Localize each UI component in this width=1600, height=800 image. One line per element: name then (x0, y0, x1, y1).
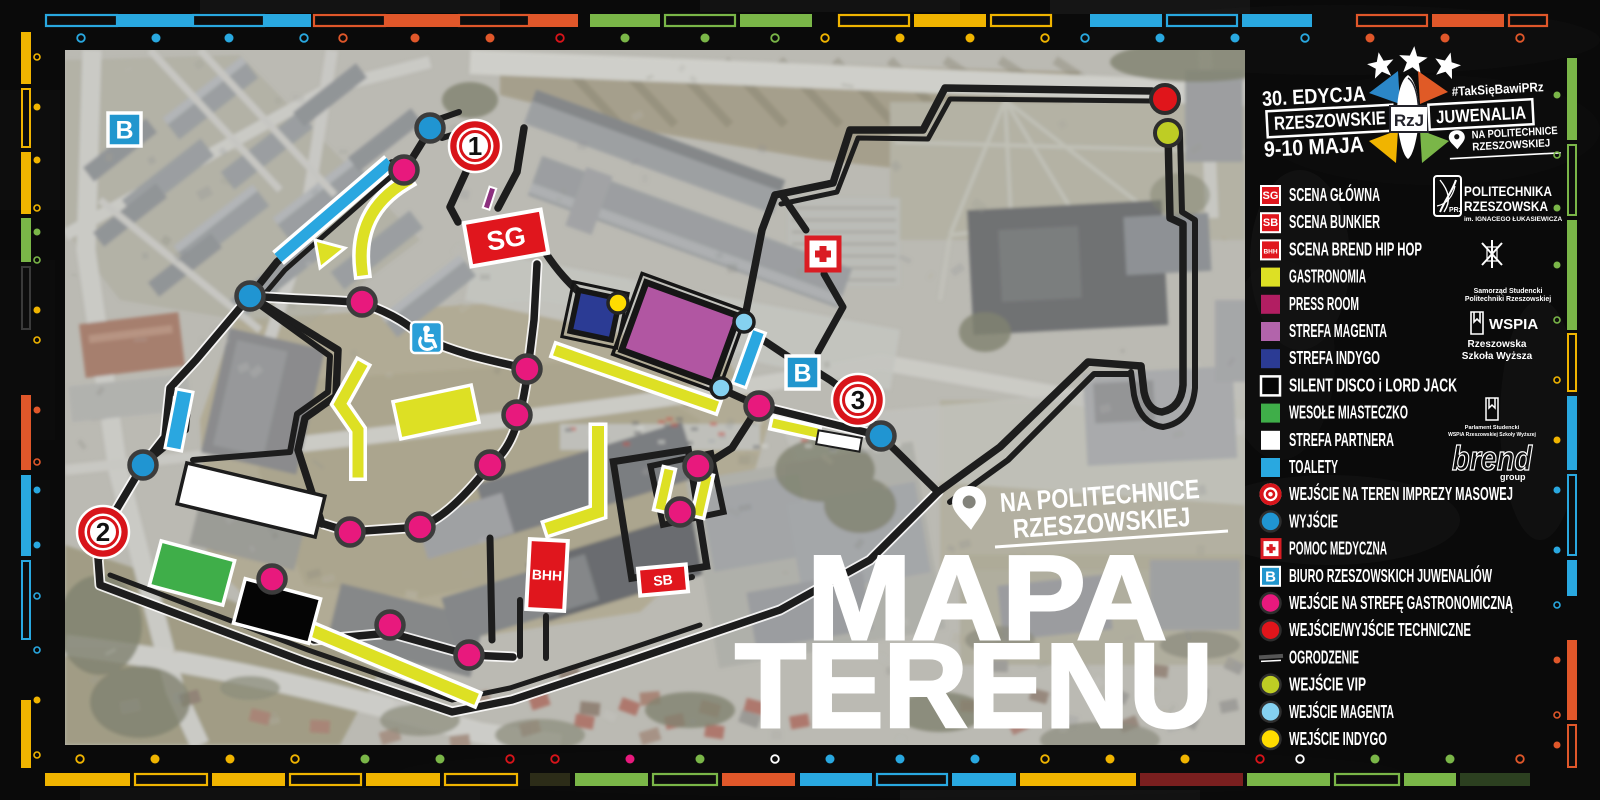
svg-text:WEJŚCIE VIP: WEJŚCIE VIP (1289, 674, 1366, 695)
svg-text:BIURO RZESZOWSKICH JUWENALIÓW: BIURO RZESZOWSKICH JUWENALIÓW (1289, 565, 1492, 586)
svg-text:GASTRONOMIA: GASTRONOMIA (1289, 267, 1366, 287)
svg-text:SILENT DISCO i LORD JACK: SILENT DISCO i LORD JACK (1289, 375, 1457, 395)
svg-text:TOALETY: TOALETY (1289, 457, 1338, 477)
svg-text:2: 2 (96, 517, 110, 547)
svg-text:WEJŚCIE NA TEREN IMPREZY MASOW: WEJŚCIE NA TEREN IMPREZY MASOWEJ (1289, 483, 1513, 504)
svg-text:BHH: BHH (1263, 248, 1277, 255)
svg-text:PRESS ROOM: PRESS ROOM (1289, 294, 1359, 314)
svg-text:WEJŚCIE/WYJŚCIE TECHNICZNE: WEJŚCIE/WYJŚCIE TECHNICZNE (1289, 619, 1471, 640)
svg-text:WSPiA Rzeszowskiej Szkoły Wyżs: WSPiA Rzeszowskiej Szkoły Wyższej (1448, 432, 1536, 438)
svg-text:RzJ: RzJ (1394, 111, 1424, 130)
svg-text:im. IGNACEGO ŁUKASIEWICZA: im. IGNACEGO ŁUKASIEWICZA (1464, 216, 1563, 223)
svg-text:PRz: PRz (1449, 207, 1463, 214)
svg-text:WESOŁE MIASTECZKO: WESOŁE MIASTECZKO (1289, 403, 1408, 423)
svg-text:Rzeszowska: Rzeszowska (1468, 339, 1527, 350)
svg-text:POLITECHNIKA: POLITECHNIKA (1464, 183, 1552, 199)
svg-text:SCENA BREND HIP HOP: SCENA BREND HIP HOP (1289, 239, 1422, 259)
svg-text:WEJŚCIE MAGENTA: WEJŚCIE MAGENTA (1289, 701, 1394, 722)
svg-text:TERENU: TERENU (735, 619, 1213, 753)
svg-text:SCENA BUNKIER: SCENA BUNKIER (1289, 212, 1380, 232)
svg-text:STREFA PARTNERA: STREFA PARTNERA (1289, 430, 1394, 450)
svg-text:STREFA MAGENTA: STREFA MAGENTA (1289, 321, 1387, 341)
svg-text:Samorząd Studencki: Samorząd Studencki (1474, 288, 1543, 295)
svg-text:B: B (115, 117, 133, 145)
svg-text:B: B (1265, 568, 1276, 585)
svg-text:STREFA INDYGO: STREFA INDYGO (1289, 348, 1380, 368)
svg-text:Parlament Studencki: Parlament Studencki (1465, 425, 1520, 431)
svg-text:1: 1 (468, 131, 482, 161)
svg-text:B: B (793, 360, 811, 388)
svg-text:RZESZOWSKA: RZESZOWSKA (1464, 198, 1548, 214)
svg-text:group: group (1500, 472, 1526, 482)
svg-text:Szkoła Wyższa: Szkoła Wyższa (1462, 351, 1533, 362)
svg-text:WEJŚCIE INDYGO: WEJŚCIE INDYGO (1289, 728, 1387, 749)
svg-text:OGRODZENIE: OGRODZENIE (1289, 647, 1359, 667)
svg-text:WSPIA: WSPIA (1489, 316, 1538, 333)
svg-text:Politechniki Rzeszowskiej: Politechniki Rzeszowskiej (1465, 296, 1551, 303)
svg-text:SG: SG (1263, 190, 1279, 202)
svg-text:BHH: BHH (531, 566, 562, 584)
svg-text:WEJŚCIE NA STREFĘ GASTRONOMICZ: WEJŚCIE NA STREFĘ GASTRONOMICZNĄ (1289, 592, 1513, 613)
svg-text:POMOC MEDYCZNA: POMOC MEDYCZNA (1289, 539, 1387, 559)
svg-text:9-10 MAJA: 9-10 MAJA (1263, 132, 1364, 162)
svg-text:WYJŚCIE: WYJŚCIE (1289, 510, 1338, 531)
svg-text:3: 3 (851, 385, 865, 415)
svg-text:SB: SB (653, 571, 674, 589)
svg-text:SB: SB (1263, 217, 1278, 229)
svg-text:SCENA GŁÓWNA: SCENA GŁÓWNA (1289, 184, 1380, 205)
